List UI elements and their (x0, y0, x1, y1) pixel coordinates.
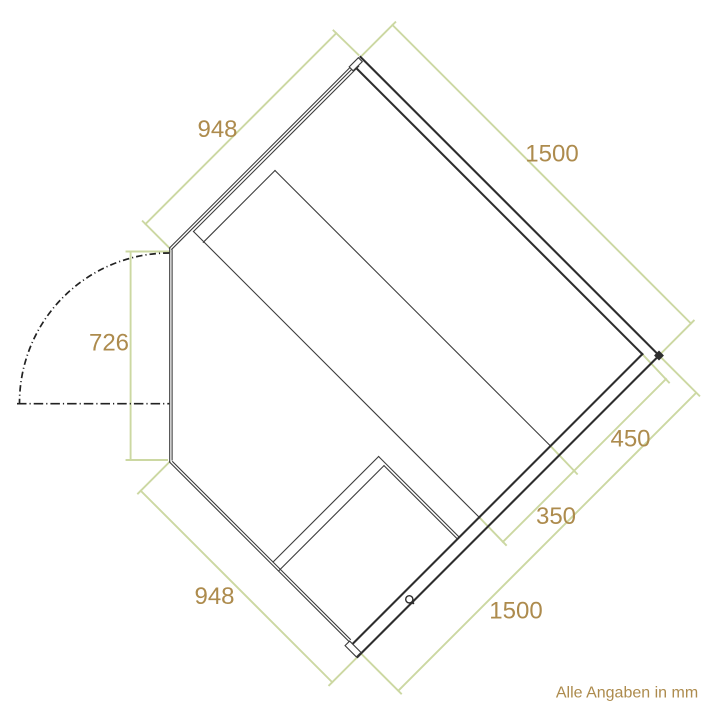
svg-text:350: 350 (536, 503, 576, 530)
svg-text:948: 948 (194, 583, 234, 610)
svg-text:948: 948 (197, 116, 237, 143)
svg-text:450: 450 (610, 426, 650, 453)
svg-text:1500: 1500 (525, 141, 578, 168)
svg-text:Alle Angaben in mm: Alle Angaben in mm (556, 684, 698, 701)
svg-text:1500: 1500 (489, 598, 542, 625)
svg-text:726: 726 (89, 330, 129, 357)
